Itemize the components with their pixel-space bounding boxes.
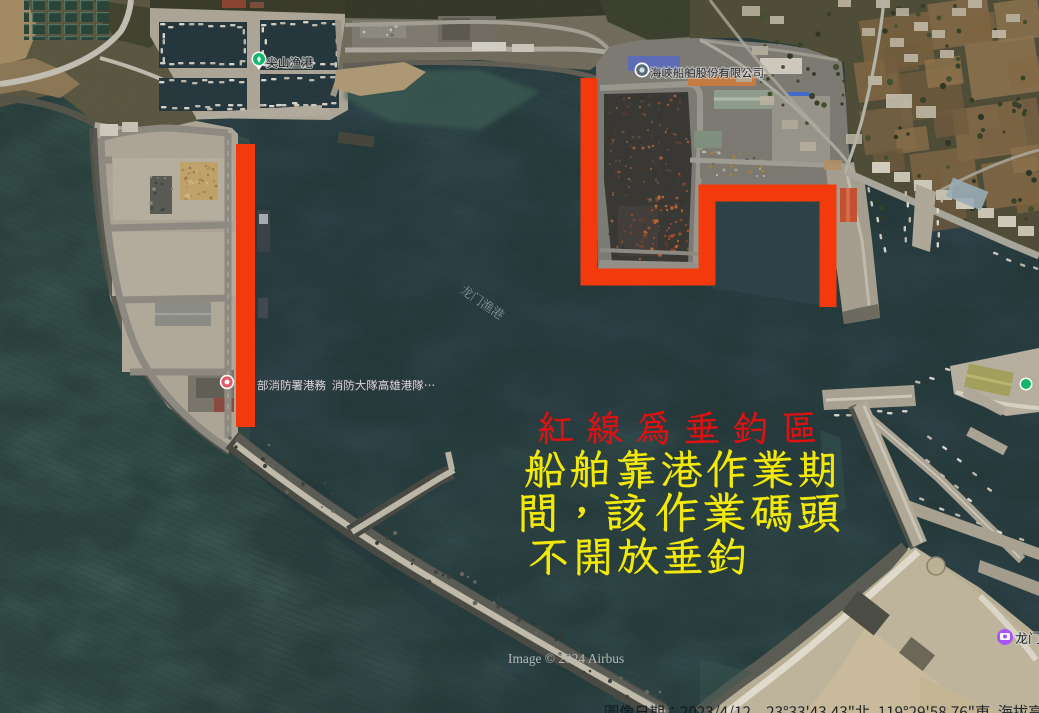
svg-text:Image © 2024 Airbus: Image © 2024 Airbus [508,651,624,666]
